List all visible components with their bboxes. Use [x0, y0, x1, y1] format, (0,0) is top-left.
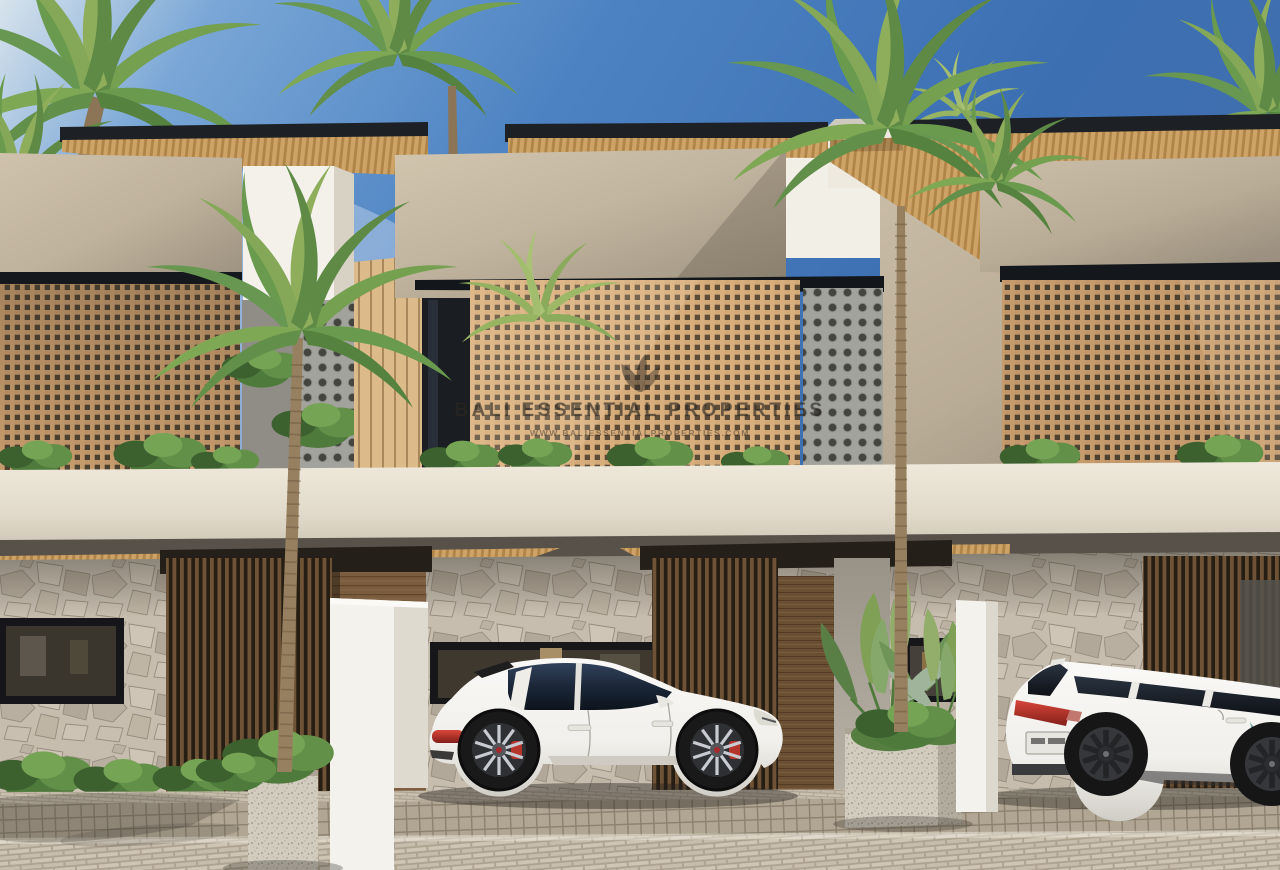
door-handle	[568, 725, 591, 731]
entry-door	[778, 576, 834, 790]
stucco-upper-wall	[980, 156, 1280, 275]
architectural-render: BALI ESSENTIAL PROPERTIES WWW.BALIESSENT…	[0, 0, 1280, 870]
door-handle	[1226, 718, 1246, 723]
stucco-upper-wall	[0, 153, 242, 288]
render-scene	[0, 0, 1280, 870]
gate-wall-side	[394, 604, 428, 788]
sill-trim	[548, 756, 692, 765]
circular-breeze-blocks	[803, 288, 883, 476]
door-handle	[652, 721, 673, 727]
white-wall-side	[334, 166, 354, 302]
